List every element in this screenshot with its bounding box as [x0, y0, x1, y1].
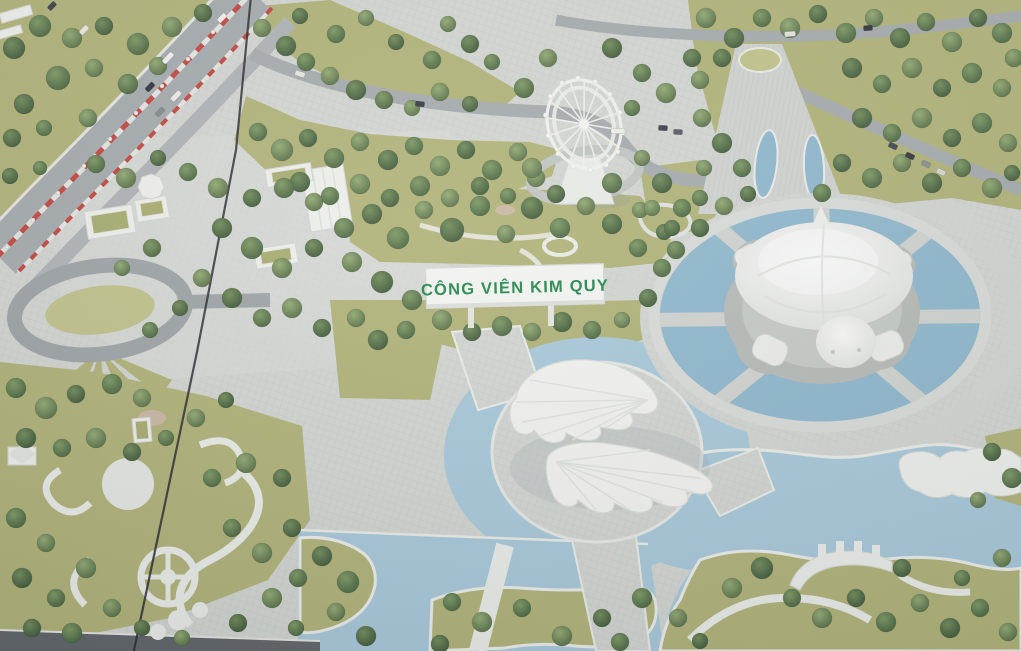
model-tree	[292, 8, 308, 24]
model-tree	[1002, 468, 1021, 488]
model-tree	[809, 5, 827, 23]
model-tree	[324, 148, 344, 168]
model-tree	[865, 9, 883, 27]
model-tree	[358, 10, 374, 26]
model-tree	[523, 323, 541, 341]
model-tree	[522, 158, 542, 178]
model-tree	[942, 32, 962, 52]
green-roof-hut	[132, 417, 152, 442]
model-tree	[103, 599, 121, 617]
model-tree	[639, 289, 657, 307]
model-vehicle	[673, 129, 682, 135]
model-tree	[497, 225, 515, 243]
model-tree	[733, 159, 751, 177]
model-tree	[123, 443, 141, 461]
model-tree	[993, 549, 1011, 567]
model-tree	[334, 218, 354, 238]
model-tree	[87, 155, 105, 173]
model-tree	[47, 589, 65, 607]
model-tree	[470, 196, 490, 216]
model-tree	[953, 159, 971, 177]
model-tree	[847, 589, 865, 607]
model-tree	[724, 28, 744, 48]
model-tree	[114, 260, 130, 276]
model-tree	[472, 612, 492, 632]
model-tree	[203, 469, 221, 487]
model-tree	[852, 108, 872, 128]
model-tree	[2, 168, 18, 184]
ferris-cabin	[617, 110, 622, 115]
model-tree	[836, 23, 856, 43]
model-tree	[632, 588, 652, 608]
model-tree	[943, 129, 961, 147]
model-tree	[289, 569, 307, 587]
model-tree	[337, 571, 359, 593]
model-tree	[577, 197, 595, 215]
model-tree	[954, 570, 970, 586]
green-roof-building	[134, 196, 169, 223]
model-tree	[327, 25, 345, 43]
model-tree	[521, 197, 543, 219]
model-tree	[321, 187, 339, 205]
pier-notch	[818, 544, 826, 557]
model-tree	[53, 439, 71, 457]
model-tree	[833, 154, 851, 172]
street-lamp	[31, 218, 35, 222]
model-tree	[862, 168, 882, 188]
scale-model-photo: CÔNG VIÊN KIM QUY	[0, 0, 1021, 651]
model-tree	[6, 378, 26, 398]
turtle-eye	[857, 348, 861, 352]
model-tree	[346, 80, 366, 100]
model-tree	[902, 58, 922, 78]
model-tree	[350, 174, 370, 194]
model-tree	[321, 67, 339, 85]
model-tree	[95, 17, 113, 35]
model-tree	[547, 185, 565, 203]
model-tree	[35, 397, 57, 419]
model-tree	[362, 204, 382, 224]
ferris-cabin	[615, 149, 620, 154]
model-tree	[876, 612, 896, 632]
model-tree	[667, 241, 685, 259]
model-tree	[85, 59, 103, 77]
model-tree	[602, 214, 622, 234]
model-tree	[218, 392, 234, 408]
model-tree	[76, 558, 96, 578]
model-tree	[696, 160, 712, 176]
model-tree	[492, 316, 512, 336]
model-tree	[912, 108, 932, 128]
model-tree	[37, 534, 55, 552]
model-tree	[187, 409, 205, 427]
model-tree	[614, 312, 630, 328]
model-tree	[611, 633, 629, 651]
model-tree	[102, 374, 122, 394]
model-tree	[971, 599, 989, 617]
model-tree	[471, 177, 489, 195]
model-tree	[142, 322, 158, 338]
ferris-cabin	[604, 162, 609, 167]
model-tree	[282, 298, 302, 318]
model-tree	[283, 519, 301, 537]
model-tree	[388, 34, 404, 50]
model-tree	[983, 443, 1001, 461]
model-tree	[46, 66, 70, 90]
street-lamp	[134, 111, 138, 115]
model-tree	[443, 593, 461, 611]
model-tree	[652, 173, 672, 193]
model-tree	[327, 603, 345, 621]
avenue-median-oval	[739, 48, 781, 72]
model-tree	[691, 219, 709, 237]
model-tree	[23, 619, 41, 637]
street-lamp	[5, 245, 9, 249]
model-tree	[653, 259, 671, 277]
model-tree	[633, 64, 651, 82]
model-tree	[236, 453, 256, 473]
model-tree	[683, 49, 701, 67]
model-tree	[312, 546, 332, 566]
pier-notch	[836, 541, 844, 554]
model-tree	[313, 319, 331, 337]
model-tree	[753, 9, 771, 27]
street-lamp	[211, 30, 215, 34]
model-tree	[993, 79, 1011, 97]
model-tree	[371, 271, 393, 293]
model-tree	[423, 51, 441, 69]
model-tree	[356, 626, 376, 646]
model-tree	[150, 150, 166, 166]
model-tree	[1004, 165, 1020, 181]
model-tree	[922, 173, 942, 193]
model-tree	[405, 137, 423, 155]
model-tree	[378, 150, 398, 170]
model-tree	[62, 28, 82, 48]
model-tree	[917, 13, 935, 31]
model-tree	[999, 134, 1017, 152]
model-tree	[158, 430, 174, 446]
model-tree	[67, 385, 85, 403]
model-tree	[462, 96, 478, 112]
model-tree	[431, 635, 449, 651]
model-tree	[375, 91, 393, 109]
ferris-cabin	[607, 92, 612, 97]
model-tree	[602, 38, 622, 58]
ferris-cabin	[546, 133, 551, 138]
model-tree	[513, 599, 531, 617]
ferris-cabin	[575, 76, 580, 81]
model-tree	[271, 139, 293, 161]
model-tree	[873, 75, 891, 93]
model-tree	[368, 330, 388, 350]
model-tree	[514, 78, 534, 98]
model-tree	[552, 312, 572, 332]
model-tree	[751, 557, 773, 579]
model-tree	[883, 124, 901, 142]
model-tree	[243, 189, 261, 207]
model-tree	[482, 160, 502, 180]
model-tree	[397, 321, 415, 339]
model-tree	[288, 620, 304, 636]
model-tree	[299, 129, 317, 147]
model-tree	[940, 618, 960, 638]
model-tree	[982, 178, 1002, 198]
ferris-cabin	[556, 151, 561, 156]
model-tree	[431, 83, 449, 101]
model-tree	[118, 74, 138, 94]
model-tree	[347, 309, 365, 327]
model-tree	[911, 594, 929, 612]
model-tree	[62, 623, 82, 643]
model-tree	[134, 620, 150, 636]
model-tree	[712, 133, 732, 153]
model-tree	[972, 113, 992, 133]
model-tree	[691, 71, 709, 89]
model-vehicle	[784, 31, 795, 37]
model-tree	[440, 218, 464, 242]
model-tree	[693, 109, 711, 127]
pier-notch	[854, 541, 862, 554]
model-tree	[14, 94, 34, 114]
model-tree	[722, 578, 742, 598]
model-tree	[644, 200, 660, 216]
model-tree	[962, 63, 982, 83]
path-pad	[168, 610, 188, 630]
model-tree	[484, 54, 500, 70]
model-tree	[127, 33, 149, 55]
model-tree	[999, 623, 1017, 641]
model-tree	[253, 19, 271, 37]
model-tree	[274, 178, 294, 198]
model-tree	[6, 508, 26, 528]
model-tree	[402, 290, 422, 310]
model-tree	[509, 143, 527, 161]
model-tree	[593, 609, 611, 627]
model-tree	[696, 8, 716, 28]
path-pad	[150, 624, 166, 640]
model-vehicle	[658, 125, 667, 131]
ferris-cabin	[548, 94, 553, 99]
model-tree	[223, 519, 241, 537]
ferris-cabin	[571, 164, 576, 169]
model-tree	[970, 492, 986, 508]
model-tree	[86, 428, 106, 448]
model-tree	[305, 193, 323, 211]
model-tree	[430, 156, 450, 176]
model-tree	[500, 188, 516, 204]
model-tree	[740, 186, 756, 202]
model-tree	[36, 120, 52, 136]
model-tree	[116, 168, 136, 188]
pier-notch	[872, 545, 880, 558]
street-lamp	[186, 57, 190, 61]
model-tree	[143, 239, 161, 257]
model-tree	[461, 35, 479, 53]
model-tree	[241, 237, 263, 259]
model-tree	[272, 258, 292, 278]
street-lamp	[82, 164, 86, 168]
model-tree	[634, 150, 650, 166]
swirl-circle	[102, 458, 154, 510]
model-tree	[692, 190, 708, 206]
model-tree	[656, 83, 676, 103]
model-tree	[842, 58, 862, 78]
model-tree	[249, 123, 267, 141]
model-tree	[252, 543, 272, 563]
model-tree	[602, 173, 622, 193]
path-pad	[192, 602, 208, 618]
model-tree	[813, 184, 831, 202]
sand-patch	[495, 205, 515, 215]
model-tree	[276, 36, 296, 56]
ferris-cabin	[592, 80, 597, 85]
model-tree	[297, 53, 315, 71]
model-tree	[552, 626, 572, 646]
model-tree	[342, 252, 362, 272]
model-tree	[713, 49, 731, 67]
model-tree	[893, 559, 911, 577]
model-tree	[3, 37, 25, 59]
model-tree	[812, 608, 832, 628]
model-tree	[783, 589, 801, 607]
model-tree	[415, 201, 433, 219]
model-tree	[669, 609, 687, 627]
model-tree	[624, 100, 640, 116]
model-tree	[933, 79, 951, 97]
model-tree	[629, 239, 647, 257]
model-vehicle	[611, 128, 625, 133]
model-tree	[305, 239, 323, 257]
model-tree	[539, 49, 557, 67]
model-tree	[208, 178, 228, 198]
model-tree	[432, 310, 452, 330]
ferris-cabin	[560, 81, 565, 86]
street-lamp	[56, 191, 60, 195]
model-tree	[992, 23, 1012, 43]
model-tree	[172, 300, 188, 316]
model-tree	[381, 189, 399, 207]
model-tree	[387, 227, 409, 249]
model-tree	[410, 176, 430, 196]
model-tree	[174, 630, 190, 646]
model-vehicle	[863, 25, 872, 31]
model-tree	[583, 321, 601, 339]
model-tree	[194, 4, 212, 22]
ferris-cabin	[588, 168, 593, 173]
model-tree	[273, 469, 291, 487]
model-tree	[440, 16, 456, 32]
model-tree	[79, 109, 97, 127]
model-tree	[550, 218, 570, 238]
model-tree	[692, 633, 708, 649]
model-vehicle	[415, 101, 424, 107]
model-tree	[179, 163, 197, 181]
model-tree	[16, 428, 36, 448]
model-tree	[664, 220, 680, 236]
ferris-cabin	[543, 113, 548, 118]
model-tree	[212, 218, 232, 238]
model-tree	[33, 161, 47, 175]
model-tree	[12, 568, 32, 588]
model-tree	[222, 288, 242, 308]
model-tree	[3, 129, 21, 147]
model-tree	[133, 389, 151, 407]
octagon-pavilion	[138, 174, 164, 199]
model-tree	[229, 614, 247, 632]
model-tree	[29, 15, 51, 37]
model-tree	[969, 9, 987, 27]
model-tree	[1005, 49, 1021, 67]
model-tree	[193, 269, 211, 287]
model-tree	[162, 17, 182, 37]
model-tree	[890, 28, 910, 48]
splat-paving	[899, 448, 1021, 498]
model-tree	[441, 189, 459, 207]
street-lamp	[160, 84, 164, 88]
model-tree	[673, 199, 691, 217]
model-tree	[262, 588, 282, 608]
model-tree	[351, 133, 369, 151]
ferris-hub	[579, 119, 589, 129]
street-lamp	[108, 137, 112, 141]
model-tree	[715, 197, 733, 215]
model-tree	[457, 141, 475, 159]
model-tree	[253, 309, 271, 327]
turtle-eye	[831, 350, 835, 354]
model-scene: CÔNG VIÊN KIM QUY	[0, 0, 1021, 651]
turtle-head	[816, 316, 876, 368]
